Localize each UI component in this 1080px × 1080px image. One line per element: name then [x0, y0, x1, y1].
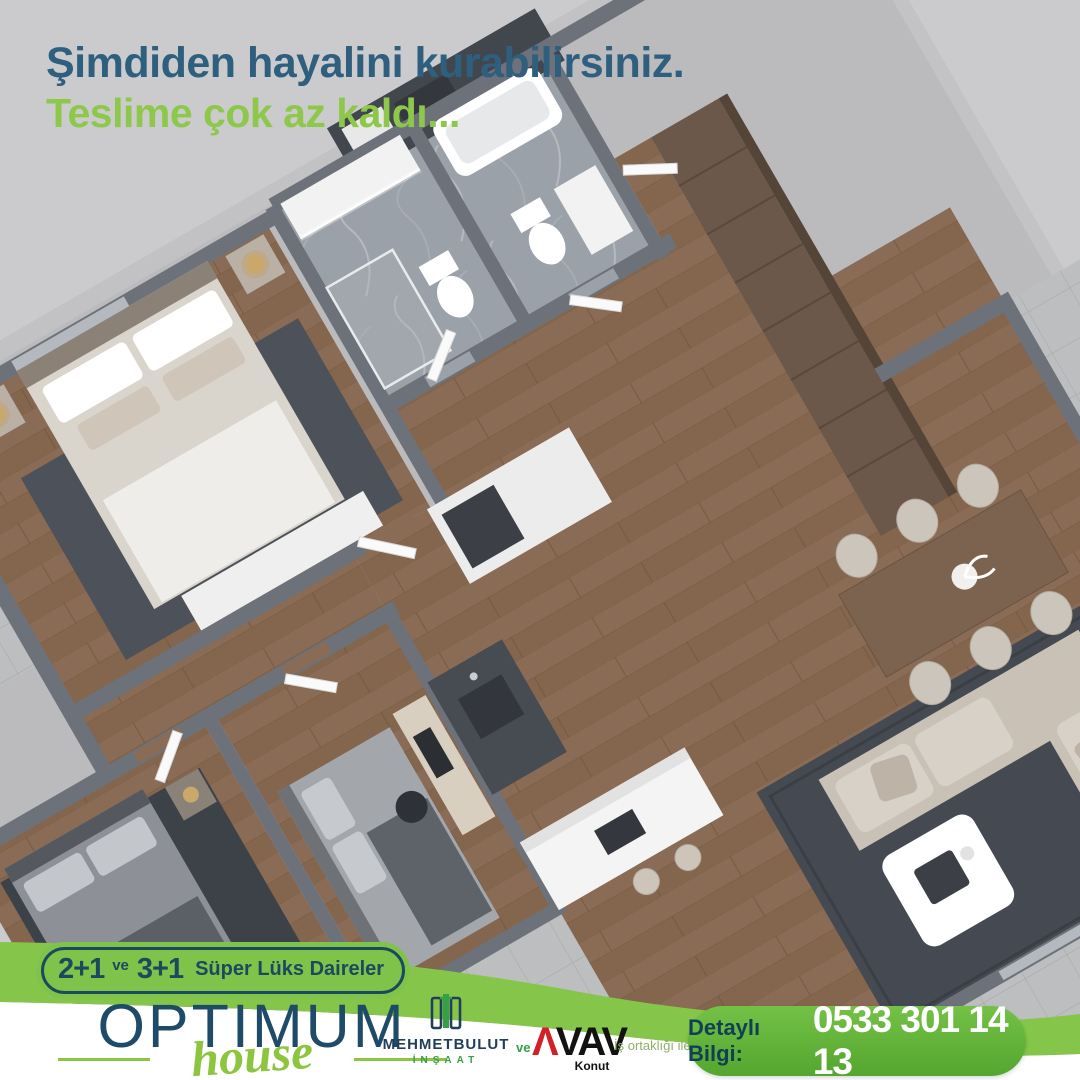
badge-num-1: 2+1 [58, 953, 104, 986]
floor-plan-illustration [0, 0, 1080, 1080]
badge-conj: ve [112, 957, 129, 974]
partner-logo-mark: Λ [532, 1020, 556, 1064]
conjunction-ve: ve [516, 1040, 530, 1055]
headline-line-2: Teslime çok az kaldı... [46, 88, 684, 138]
headline: Şimdiden hayalini kurabilirsiniz. Teslim… [46, 38, 684, 138]
poster: Şimdiden hayalini kurabilirsiniz. Teslim… [0, 0, 1080, 1080]
contact-pill[interactable]: Detaylı Bilgi: 0533 301 14 13 [688, 1006, 1026, 1076]
contact-phone: 0533 301 14 13 [813, 999, 1026, 1080]
offer-badge-inner: 2+1 ve 3+1 Süper Lüks Daireler [41, 947, 405, 994]
badge-text: Süper Lüks Daireler [195, 958, 384, 981]
door-leaf [623, 163, 677, 175]
builder-logo-icon [426, 992, 466, 1034]
builder-name: MEHMETBULUT [380, 1036, 512, 1053]
builder-logo: MEHMETBULUT İNŞAAT [380, 992, 512, 1066]
headline-line-1: Şimdiden hayalini kurabilirsiniz. [46, 38, 684, 88]
optimum-logo-script: house [189, 1022, 315, 1080]
builder-sub: İNŞAAT [380, 1055, 512, 1066]
partner-logo: ΛVAV Konut [532, 1020, 626, 1073]
contact-label: Detaylı Bilgi: [688, 1015, 805, 1067]
partnership-note: İş ortaklığı ile [614, 1038, 691, 1053]
badge-num-2: 3+1 [137, 953, 183, 986]
logo-line-left [58, 1058, 150, 1061]
offer-badge: 2+1 ve 3+1 Süper Lüks Daireler [36, 942, 410, 999]
